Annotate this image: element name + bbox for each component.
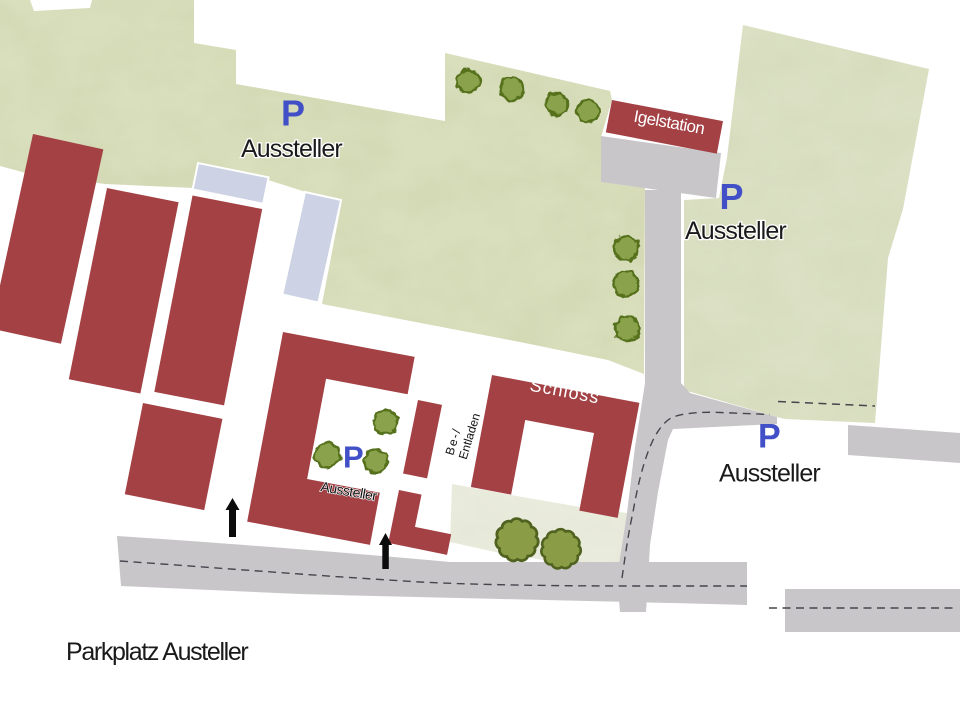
svg-text:Parkplatz Austeller: Parkplatz Austeller [66, 638, 248, 666]
svg-text:Aussteller: Aussteller [719, 460, 820, 488]
svg-text:P: P [720, 176, 744, 217]
svg-text:Aussteller: Aussteller [685, 217, 786, 245]
svg-text:P: P [343, 440, 364, 475]
svg-text:P: P [281, 93, 305, 134]
svg-text:Aussteller: Aussteller [241, 135, 342, 163]
svg-text:P: P [758, 418, 781, 456]
